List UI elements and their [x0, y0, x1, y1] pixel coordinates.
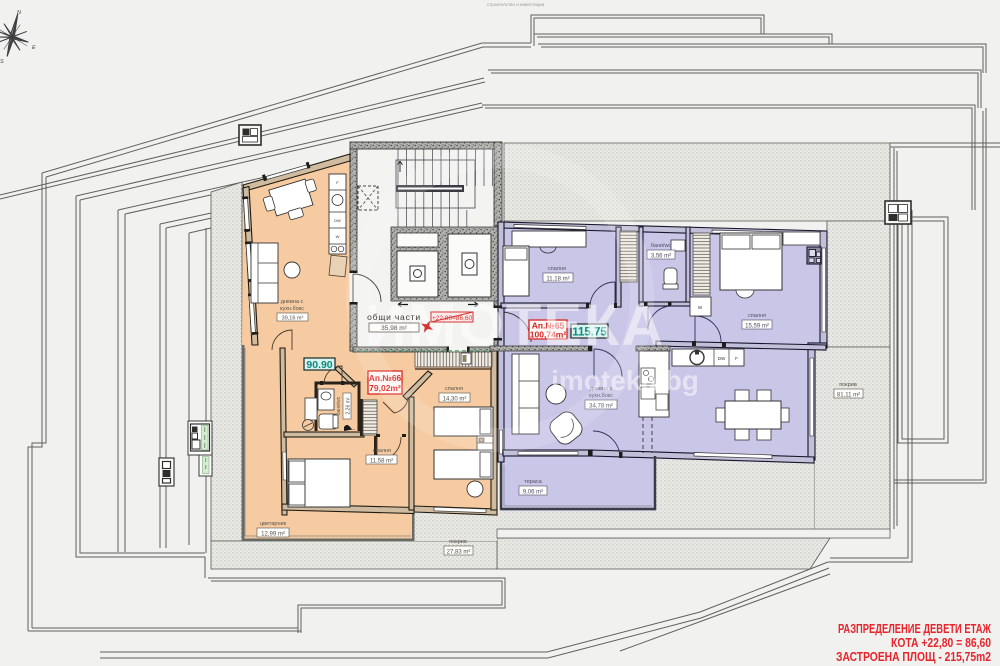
svg-text:3,56 m²: 3,56 m² — [651, 254, 671, 260]
svg-text:9,06 m²: 9,06 m² — [523, 490, 543, 496]
svg-text:спалня: спалня — [548, 266, 566, 272]
svg-text:N: N — [17, 10, 21, 16]
svg-text:цветарник: цветарник — [260, 521, 287, 527]
svg-text:спалня: спалня — [445, 386, 463, 392]
svg-text:90.90: 90.90 — [306, 359, 332, 371]
svg-text:+22,80=86,60: +22,80=86,60 — [432, 315, 473, 322]
svg-text:DW: DW — [718, 356, 726, 361]
svg-text:imoteka.bg: imoteka.bg — [551, 365, 699, 396]
svg-text:27,83 m²: 27,83 m² — [447, 550, 471, 556]
svg-text:S: S — [0, 59, 4, 65]
svg-text:КОТА +22,80 = 86,60: КОТА +22,80 = 86,60 — [891, 636, 991, 650]
svg-text:E: E — [32, 45, 36, 51]
svg-text:W: W — [336, 234, 340, 239]
svg-text:12,99 m²: 12,99 m² — [261, 532, 285, 538]
svg-text:кухн.бокс: кухн.бокс — [280, 306, 304, 312]
svg-text:15,59 m²: 15,59 m² — [745, 324, 769, 330]
svg-text:покрив: покрив — [839, 382, 857, 388]
svg-text:дневна с: дневна с — [281, 299, 304, 305]
svg-text:81,11 m²: 81,11 m² — [837, 393, 860, 399]
svg-text:баня/wc: баня/wc — [336, 396, 342, 415]
svg-text:тераса: тераса — [524, 479, 542, 485]
svg-text:ЗАСТРОЕНА ПЛОЩ - 215,75m2: ЗАСТРОЕНА ПЛОЩ - 215,75m2 — [836, 650, 991, 664]
svg-text:F: F — [735, 356, 738, 361]
svg-text:11,18 m²: 11,18 m² — [546, 277, 569, 283]
svg-text:спалня: спалня — [748, 313, 766, 319]
svg-text:14,30 m²: 14,30 m² — [443, 397, 467, 403]
svg-text:11,58 m²: 11,58 m² — [370, 459, 393, 465]
svg-text:спалня: спалня — [373, 448, 391, 454]
svg-text:DW: DW — [334, 218, 341, 223]
svg-text:РАЗПРЕДЕЛЕНИЕ ДЕВЕТИ ЕТАЖ: РАЗПРЕДЕЛЕНИЕ ДЕВЕТИ ЕТАЖ — [838, 622, 992, 636]
svg-text:35,98 m²: 35,98 m² — [381, 325, 407, 332]
svg-text:покрив: покрив — [449, 539, 467, 545]
svg-text:общи части: общи части — [367, 312, 421, 322]
svg-text:39,16 m²: 39,16 m² — [282, 316, 304, 322]
svg-text:баня/wc: баня/wc — [651, 243, 672, 249]
svg-text:2,26 m²: 2,26 m² — [346, 397, 352, 414]
svg-text:строителство и инвестиции: строителство и инвестиции — [487, 2, 545, 7]
